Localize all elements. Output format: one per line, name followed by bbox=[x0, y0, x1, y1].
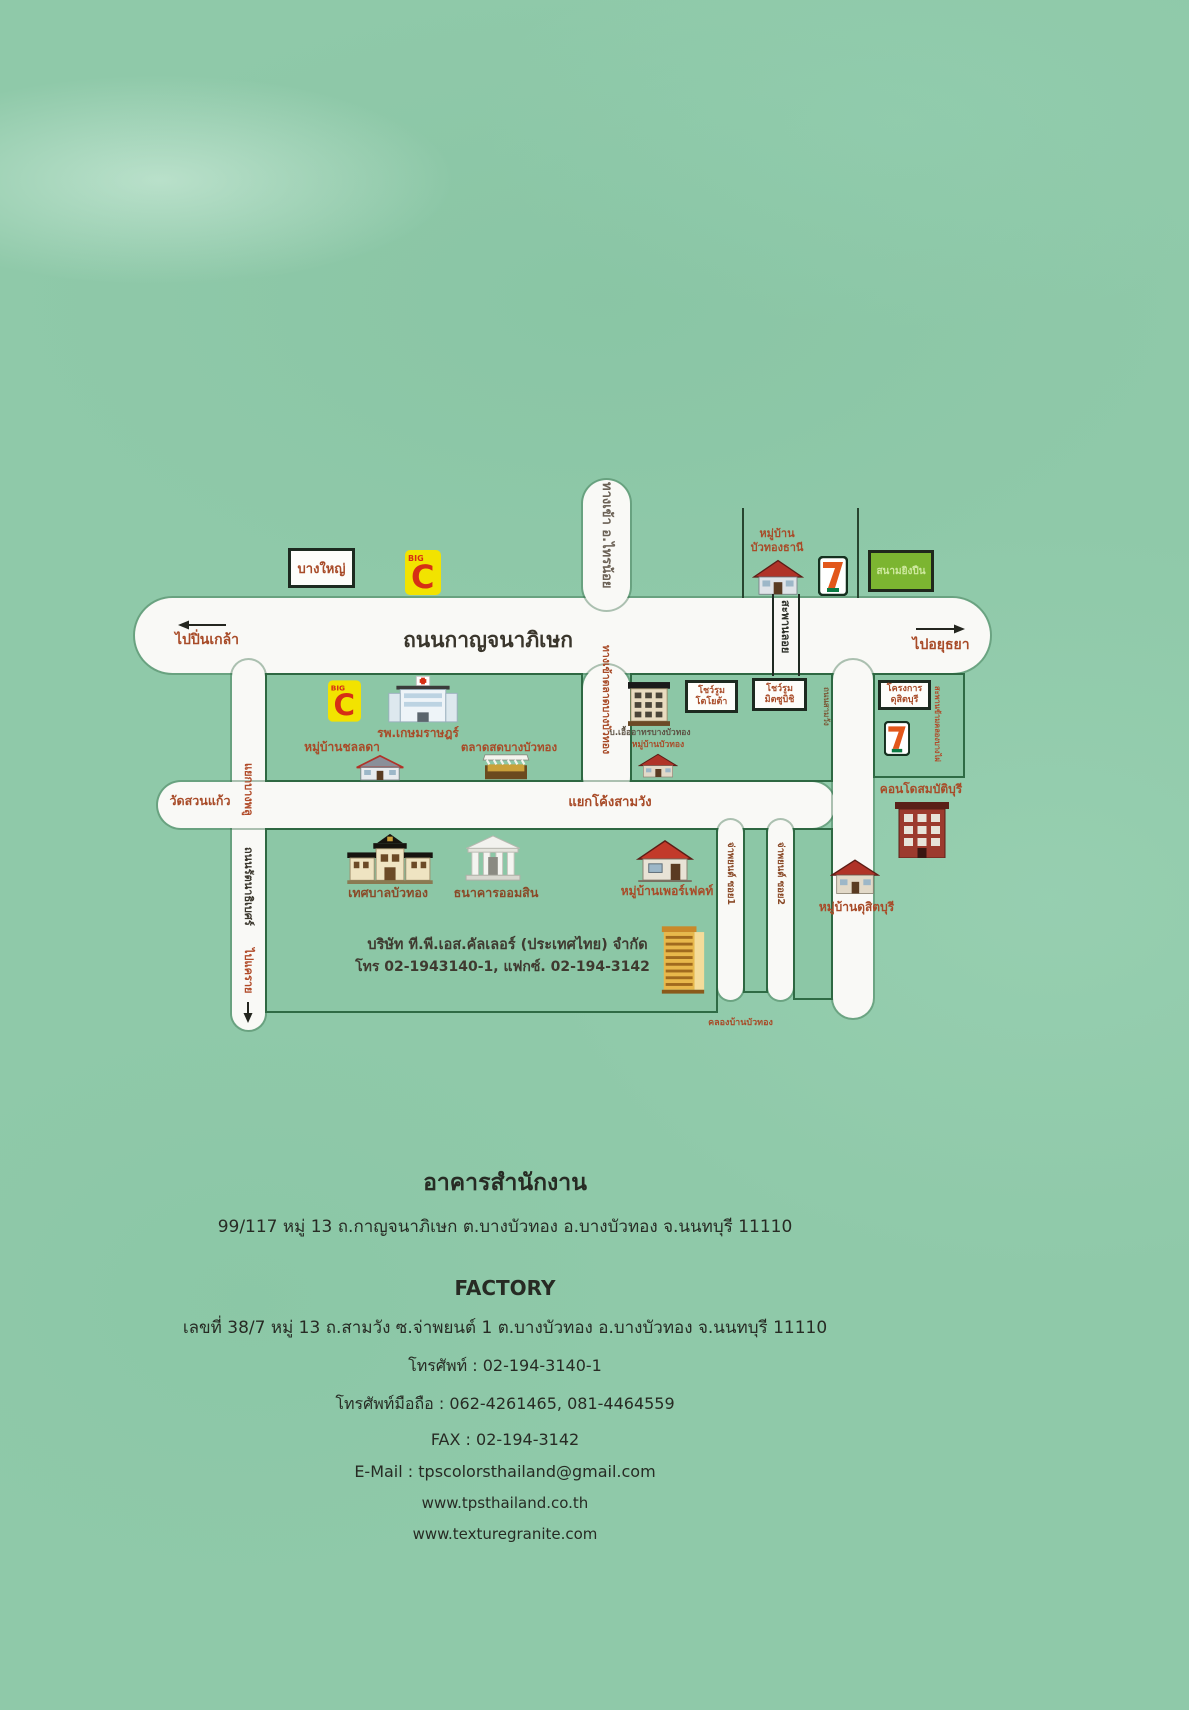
office-address: 99/117 หมู่ 13 ถ.กาญจนาภิเษก ต.บางบัวทอง… bbox=[115, 1213, 895, 1240]
seven-eleven-icon-2 bbox=[884, 721, 910, 756]
bigc-c-text: C bbox=[411, 558, 434, 595]
footer-website-2: www.texturegranite.com bbox=[115, 1525, 895, 1543]
to-khaerai-label: ไปแคราย bbox=[243, 948, 254, 994]
perfect-label: หมู่บ้านเพอร์เฟคท์ bbox=[608, 884, 726, 899]
bigc-icon-2: BIG C bbox=[328, 680, 361, 722]
perfect-house-icon bbox=[636, 838, 694, 882]
to-pinklao-label: ไปปิ่นเกล้า bbox=[162, 632, 252, 650]
dusitburi-project-sign: โครงการ ดุสิตบุรี bbox=[878, 680, 931, 710]
soi-japhayon-1-label: จ่าพยนต์ ซอย1 bbox=[726, 842, 736, 905]
municipality-label: เทศบาลบัวทอง bbox=[338, 885, 438, 901]
bangphlu-junction-label: แยกบางพลู bbox=[243, 763, 254, 816]
condo-icon bbox=[893, 800, 951, 858]
footer-fax: FAX : 02-194-3142 bbox=[115, 1430, 895, 1449]
company-name-label: บริษัท ที.พี.เอส.คัลเลอร์ (ประเทศไทย) จำ… bbox=[355, 936, 660, 954]
buathong-thani-label: หมู่บ้าน บัวทองธานี bbox=[743, 527, 811, 555]
samwang-road-label: ถนนสามวัง bbox=[822, 687, 830, 726]
factory-heading: FACTORY bbox=[115, 1276, 895, 1300]
sainoi-entrance-label: ทางเข้า อ.ไทรน้อย bbox=[600, 482, 613, 589]
boundary-line-right bbox=[857, 508, 859, 598]
seven-eleven-icon bbox=[818, 556, 848, 596]
footer-email: E-Mail : tpscolorsthailand@gmail.com bbox=[115, 1462, 895, 1481]
canal-bridge-label: สะพานข้ามคลองบางไผ่ bbox=[934, 686, 942, 762]
factory-address: เลขที่ 38/7 หมู่ 13 ถ.สามวัง ซ.จ่าพยนต์ … bbox=[115, 1314, 895, 1341]
hospital-icon bbox=[385, 676, 461, 724]
bank-label: ธนาคารออมสิน bbox=[446, 885, 546, 901]
footer-phone: โทรศัพท์ : 02-194-3140-1 bbox=[115, 1354, 895, 1379]
market-icon bbox=[481, 753, 531, 781]
chonlada-house-icon bbox=[355, 754, 405, 781]
svg-text:C: C bbox=[334, 688, 356, 722]
dusitburi-village-label: หมู่บ้านดุสิตบุรี bbox=[804, 900, 909, 915]
municipality-icon bbox=[345, 832, 435, 884]
arrow-down-icon bbox=[242, 1000, 254, 1024]
footer-address-block: อาคารสำนักงาน 99/117 หมู่ 13 ถ.กาญจนาภิเ… bbox=[115, 1165, 895, 1543]
uea-athon-label: บ.เอื้ออาทรบางบัวทอง bbox=[600, 728, 700, 739]
uea-athon-building-icon bbox=[628, 682, 670, 726]
dusitburi-village-house-icon bbox=[830, 856, 880, 896]
to-ayutthaya-label: ไปอยุธยา bbox=[902, 637, 980, 655]
buathong-village-label: หมู่บ้านบัวทอง bbox=[622, 740, 694, 751]
overpass-line-left bbox=[772, 594, 774, 676]
soi-japhayon-2-label: จ่าพยนต์ ซอย2 bbox=[776, 842, 786, 905]
arrow-right-icon bbox=[912, 623, 967, 635]
map-page: บางใหญ่ BIG C ทางเข้า อ.ไทรน้อย หมู่บ้าน… bbox=[0, 0, 1189, 1710]
buathong-village-house-icon bbox=[638, 752, 678, 778]
arrow-left-icon bbox=[176, 619, 228, 631]
bangyai-label: บางใหญ่ bbox=[298, 558, 346, 579]
shooting-range-sign: สนามยิงปืน bbox=[868, 550, 934, 592]
kanchanaphisek-label: ถนนกาญจนาภิเษก bbox=[388, 627, 588, 653]
condo-label: คอนโดสมบัติบุรี bbox=[866, 782, 976, 797]
footer-mobile: โทรศัพท์มือถือ : 062-4261465, 081-446455… bbox=[115, 1392, 895, 1417]
canal-label: คลองบ้านบัวทอง bbox=[678, 1018, 803, 1029]
buathong-thani-house-icon bbox=[752, 558, 804, 596]
chonlada-label: หมู่บ้านชลลดา bbox=[292, 740, 392, 755]
office-heading: อาคารสำนักงาน bbox=[115, 1165, 895, 1201]
rattanathibet-label: ถนนรัตนาธิเบศร์ bbox=[243, 847, 254, 926]
overpass-line-right bbox=[798, 594, 800, 676]
samwang-junction-label: แยกโค้งสามวัง bbox=[560, 795, 660, 811]
factory-building-icon bbox=[658, 924, 708, 994]
showroom-toyota-sign: โชว์รูม โตโยต้า bbox=[685, 680, 738, 713]
block-soi-strip-1 bbox=[743, 828, 768, 993]
showroom-mitsubishi-sign: โชว์รูม มิตซูบิชิ bbox=[752, 678, 807, 711]
watsuankaew-label: วัดสวนแก้ว bbox=[160, 793, 240, 809]
road-samwang-south bbox=[833, 660, 873, 1018]
company-phone-label: โทร 02-1943140-1, แฟกซ์. 02-194-3142 bbox=[355, 959, 650, 977]
overpass-label: สะพานลอย bbox=[780, 600, 791, 653]
shooting-range-label: สนามยิงปืน bbox=[876, 564, 925, 579]
footer-website-1: www.tpsthailand.co.th bbox=[115, 1494, 895, 1512]
bigc-icon: BIG C bbox=[405, 550, 441, 595]
hospital-label: รพ.เกษมราษฎร์ bbox=[358, 726, 478, 741]
bank-icon bbox=[462, 834, 524, 882]
bangyai-sign: บางใหญ่ bbox=[288, 548, 355, 588]
